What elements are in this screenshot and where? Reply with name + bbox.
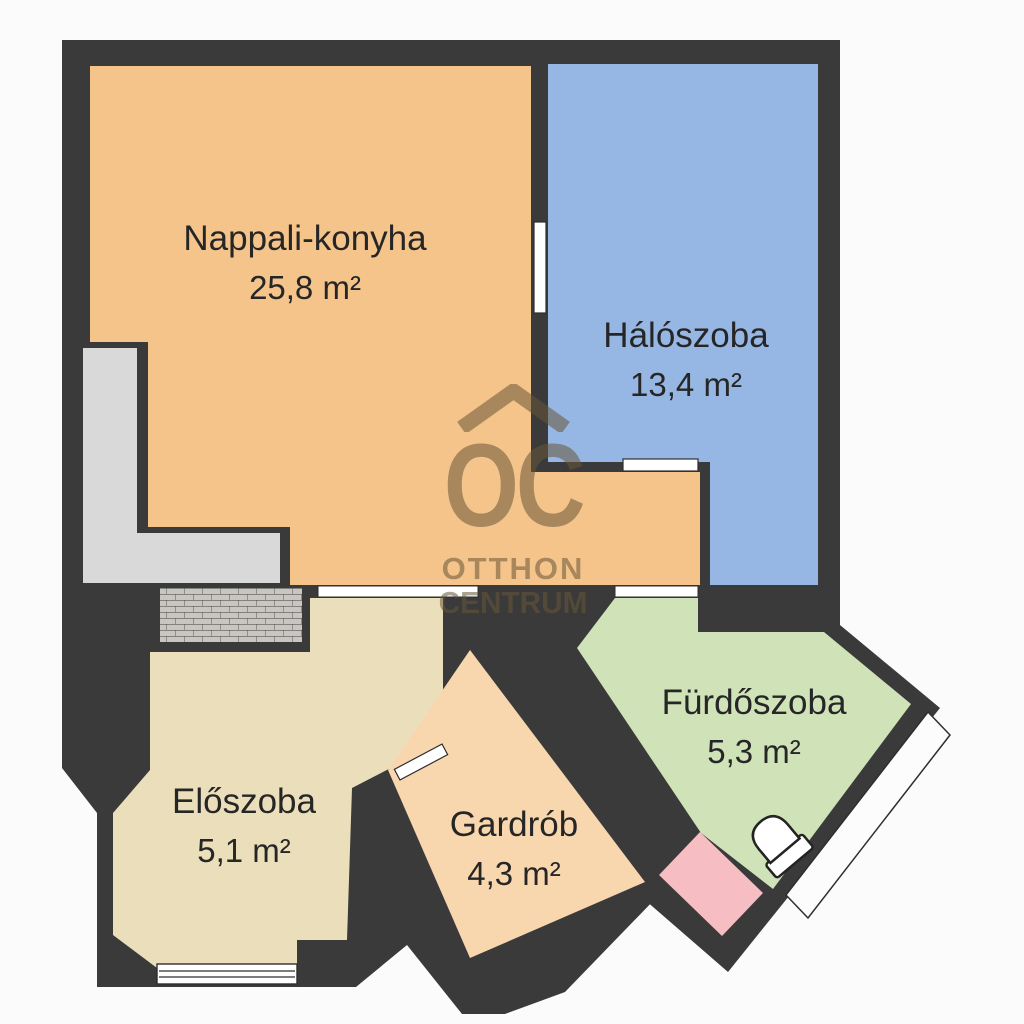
tiled-corridor-area [160, 588, 302, 642]
entrance-door [157, 964, 297, 984]
floor-plan: OC OTTHON CENTRUM Nappali-konyha 25,8 m²… [0, 0, 1024, 1024]
floor-plan-canvas [0, 0, 1024, 1024]
door-bathroom [615, 586, 698, 597]
door-living-bedroom [534, 222, 546, 313]
door-bedroom [623, 459, 698, 471]
opening-living-hallway [318, 586, 478, 597]
